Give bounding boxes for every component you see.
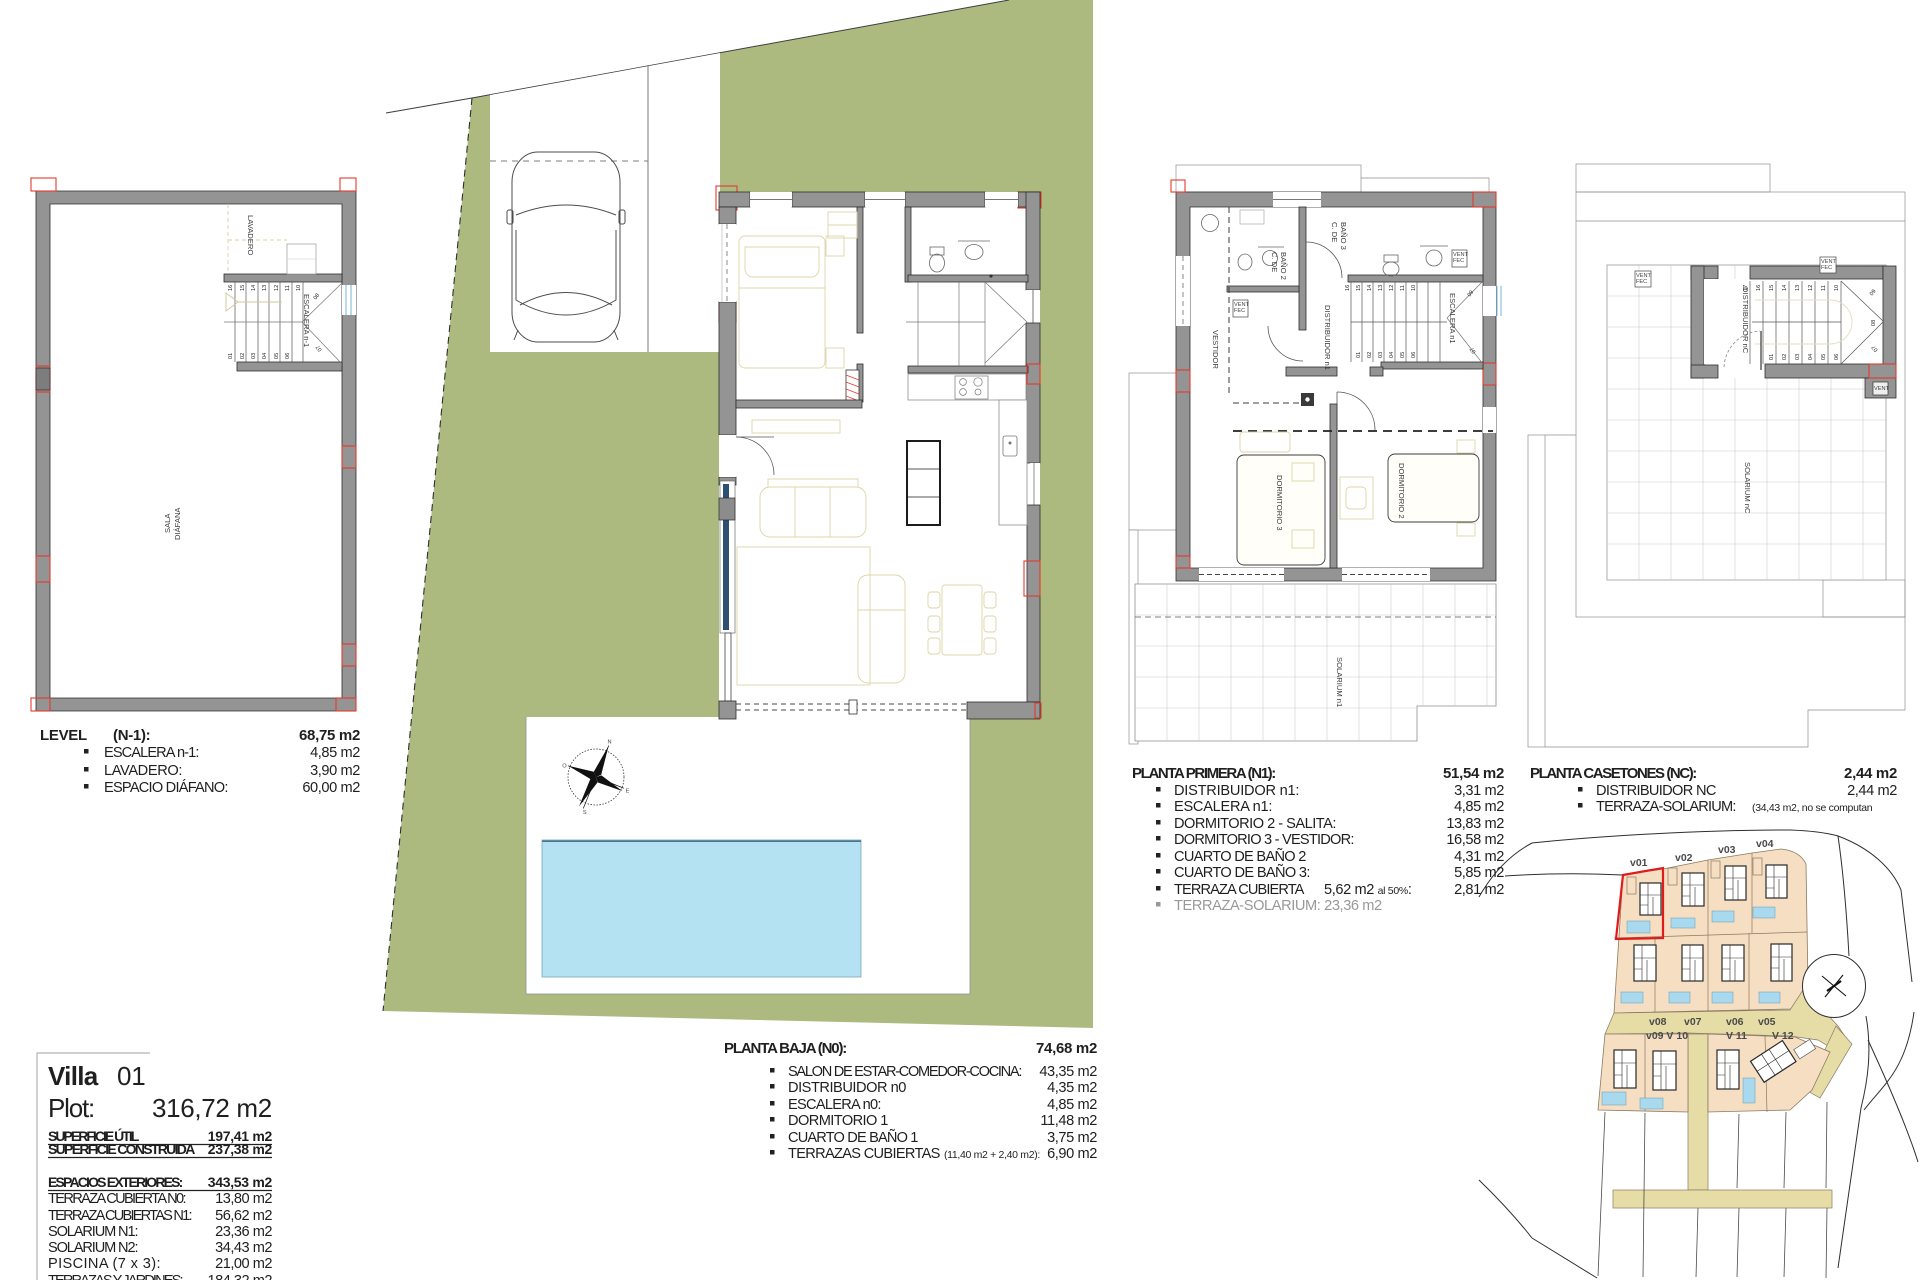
svg-text:04: 04 bbox=[1808, 354, 1814, 360]
svg-text:4,85 m2: 4,85 m2 bbox=[1454, 799, 1504, 815]
svg-text:15: 15 bbox=[240, 285, 246, 291]
svg-text:SALA: SALA bbox=[163, 513, 172, 533]
svg-text:4,35 m2: 4,35 m2 bbox=[1047, 1080, 1097, 1096]
svg-text:PLANTA PRIMERA (N1):: PLANTA PRIMERA (N1): bbox=[1132, 765, 1276, 782]
svg-text:LAVADERO: LAVADERO bbox=[246, 215, 255, 255]
svg-text:01: 01 bbox=[117, 1061, 146, 1091]
svg-text:VENT: VENT bbox=[1874, 386, 1890, 392]
svg-text:ESCALERA n-1:: ESCALERA n-1: bbox=[104, 745, 199, 761]
svg-text:3,75 m2: 3,75 m2 bbox=[1047, 1130, 1097, 1146]
svg-text:06: 06 bbox=[285, 353, 291, 359]
svg-text:LAVADERO:: LAVADERO: bbox=[104, 763, 182, 779]
svg-text:BAÑO 3: BAÑO 3 bbox=[1339, 222, 1348, 250]
svg-text:74,68 m2: 74,68 m2 bbox=[1036, 1040, 1097, 1057]
svg-text:3,90 m2: 3,90 m2 bbox=[310, 763, 360, 779]
svg-text:13: 13 bbox=[262, 285, 268, 291]
svg-text:O: O bbox=[562, 763, 567, 769]
svg-text:(34,43 m2, no se computan: (34,43 m2, no se computan bbox=[1752, 802, 1873, 814]
svg-text:v02: v02 bbox=[1675, 852, 1693, 864]
svg-text:01: 01 bbox=[1356, 352, 1362, 358]
svg-text:11: 11 bbox=[1821, 285, 1827, 291]
svg-text:06: 06 bbox=[1834, 354, 1840, 360]
svg-text:Villa: Villa bbox=[48, 1061, 99, 1091]
svg-text:BAÑO 2: BAÑO 2 bbox=[1279, 252, 1288, 280]
svg-text:v01: v01 bbox=[1630, 857, 1648, 869]
svg-text:DORMITORIO 3: DORMITORIO 3 bbox=[1275, 475, 1284, 531]
svg-text:2,44 m2: 2,44 m2 bbox=[1844, 765, 1897, 782]
svg-text:02: 02 bbox=[240, 353, 246, 359]
svg-text:V 12: V 12 bbox=[1772, 1030, 1794, 1042]
svg-text:TERRAZAS Y JARDINES:: TERRAZAS Y JARDINES: bbox=[48, 1273, 183, 1280]
svg-text:TERRAZAS CUBIERTAS: TERRAZAS CUBIERTAS bbox=[788, 1146, 941, 1162]
svg-text:12: 12 bbox=[1808, 285, 1814, 291]
svg-text:68,75 m2: 68,75 m2 bbox=[299, 727, 360, 744]
svg-text:SALON DE ESTAR-COMEDOR-COCINA:: SALON DE ESTAR-COMEDOR-COCINA: bbox=[788, 1064, 1022, 1080]
svg-text:5,62 m2 al 50%:: 5,62 m2 al 50%: bbox=[1324, 882, 1412, 898]
svg-text:DISTRIBUIDOR nC: DISTRIBUIDOR nC bbox=[1741, 287, 1750, 354]
svg-text:TERRAZA CUBIERTAS N1:: TERRAZA CUBIERTAS N1: bbox=[48, 1208, 192, 1224]
svg-text:10: 10 bbox=[296, 285, 302, 291]
svg-text:DORMITORIO 3 - VESTIDOR:: DORMITORIO 3 - VESTIDOR: bbox=[1174, 832, 1354, 848]
svg-text:TERRAZA-SOLARIUM: 23,36 m2: TERRAZA-SOLARIUM: 23,36 m2 bbox=[1174, 898, 1382, 914]
svg-text:DISTRIBUIDOR n1: DISTRIBUIDOR n1 bbox=[1323, 305, 1332, 370]
svg-text:DISTRIBUIDOR n1:: DISTRIBUIDOR n1: bbox=[1174, 783, 1299, 799]
svg-text:10: 10 bbox=[1411, 285, 1417, 291]
svg-text:16,58 m2: 16,58 m2 bbox=[1446, 832, 1504, 848]
svg-text:V 11: V 11 bbox=[1726, 1030, 1747, 1042]
svg-text:11,48 m2: 11,48 m2 bbox=[1040, 1113, 1097, 1129]
svg-text:06: 06 bbox=[1411, 352, 1417, 358]
svg-text:15: 15 bbox=[1769, 285, 1775, 291]
svg-text:184,32 m2: 184,32 m2 bbox=[208, 1273, 273, 1280]
svg-text:Plot:: Plot: bbox=[48, 1093, 95, 1123]
svg-text:CUARTO DE BAÑO 3:: CUARTO DE BAÑO 3: bbox=[1174, 864, 1310, 881]
svg-text:15: 15 bbox=[1356, 285, 1362, 291]
svg-text:TERRAZA CUBIERTA: TERRAZA CUBIERTA bbox=[1174, 882, 1305, 898]
svg-text:N: N bbox=[607, 740, 611, 746]
svg-text:56,62 m2: 56,62 m2 bbox=[215, 1208, 272, 1224]
svg-text:03: 03 bbox=[1795, 354, 1801, 360]
svg-text:14: 14 bbox=[1782, 285, 1788, 291]
svg-text:2,81 m2: 2,81 m2 bbox=[1454, 882, 1504, 898]
svg-text:60,00 m2: 60,00 m2 bbox=[302, 780, 360, 796]
svg-text:FEC: FEC bbox=[1636, 279, 1647, 285]
svg-text:DIÁFANA: DIÁFANA bbox=[173, 507, 182, 540]
svg-text:12: 12 bbox=[274, 285, 280, 291]
svg-text:01: 01 bbox=[228, 353, 234, 359]
svg-text:ESCALERA n1: ESCALERA n1 bbox=[1448, 293, 1457, 344]
svg-text:04: 04 bbox=[262, 353, 268, 359]
svg-text:03: 03 bbox=[251, 353, 257, 359]
svg-text:05: 05 bbox=[1821, 354, 1827, 360]
svg-text:02: 02 bbox=[1367, 352, 1373, 358]
svg-text:43,35 m2: 43,35 m2 bbox=[1039, 1064, 1097, 1080]
svg-text:13,80 m2: 13,80 m2 bbox=[215, 1191, 272, 1207]
svg-text:E: E bbox=[626, 789, 630, 795]
svg-text:13: 13 bbox=[1795, 285, 1801, 291]
svg-text:CUARTO DE BAÑO 2: CUARTO DE BAÑO 2 bbox=[1174, 848, 1306, 865]
svg-text:PISCINA (7 x 3):: PISCINA (7 x 3): bbox=[48, 1256, 160, 1272]
svg-text:34,43 m2: 34,43 m2 bbox=[215, 1240, 272, 1256]
svg-text:v08: v08 bbox=[1649, 1016, 1667, 1028]
svg-text:14: 14 bbox=[1367, 285, 1373, 291]
svg-text:C. DE: C. DE bbox=[1330, 222, 1339, 242]
svg-text:05: 05 bbox=[274, 353, 280, 359]
svg-text:08: 08 bbox=[1871, 320, 1877, 326]
svg-text:3,31 m2: 3,31 m2 bbox=[1454, 783, 1504, 799]
svg-text:343,53 m2: 343,53 m2 bbox=[208, 1174, 273, 1190]
svg-text:DISTRIBUIDOR n0: DISTRIBUIDOR n0 bbox=[788, 1080, 906, 1096]
svg-text:SOLARIUM N1:: SOLARIUM N1: bbox=[48, 1224, 138, 1240]
svg-text:DISTRIBUIDOR NC: DISTRIBUIDOR NC bbox=[1596, 783, 1716, 799]
svg-text:4,31 m2: 4,31 m2 bbox=[1454, 849, 1504, 865]
svg-text:23,36 m2: 23,36 m2 bbox=[215, 1224, 272, 1240]
svg-text:12: 12 bbox=[1389, 285, 1395, 291]
svg-text:(11,40 m2 + 2,40 m2):: (11,40 m2 + 2,40 m2): bbox=[944, 1149, 1040, 1161]
svg-text:2,44 m2: 2,44 m2 bbox=[1847, 783, 1897, 799]
svg-text:ESPACIOS EXTERIORES:: ESPACIOS EXTERIORES: bbox=[48, 1174, 183, 1190]
svg-text:04: 04 bbox=[1389, 352, 1395, 358]
svg-text:4,85 m2: 4,85 m2 bbox=[310, 745, 360, 761]
svg-text:v07: v07 bbox=[1684, 1016, 1702, 1028]
svg-text:02: 02 bbox=[1782, 354, 1788, 360]
svg-text:FEC: FEC bbox=[1453, 258, 1464, 264]
svg-text:TERRAZA-SOLARIUM:: TERRAZA-SOLARIUM: bbox=[1596, 799, 1736, 815]
svg-text:21,00 m2: 21,00 m2 bbox=[215, 1256, 272, 1272]
svg-text:v04: v04 bbox=[1756, 838, 1774, 850]
svg-text:v05: v05 bbox=[1758, 1016, 1776, 1028]
svg-text:LEVEL: LEVEL bbox=[40, 727, 87, 744]
svg-text:ESCALERA n1:: ESCALERA n1: bbox=[1174, 799, 1272, 815]
svg-text:01: 01 bbox=[1769, 354, 1775, 360]
svg-text:16: 16 bbox=[1756, 285, 1762, 291]
svg-text:(N-1):: (N-1): bbox=[113, 727, 150, 744]
svg-text:SOLARIUM nC: SOLARIUM nC bbox=[1743, 462, 1752, 514]
svg-text:316,72 m2: 316,72 m2 bbox=[152, 1093, 272, 1123]
svg-text:6,90 m2: 6,90 m2 bbox=[1047, 1146, 1097, 1162]
svg-text:ESCALERA n-1: ESCALERA n-1 bbox=[302, 294, 311, 347]
svg-text:13,83 m2: 13,83 m2 bbox=[1446, 816, 1504, 832]
svg-text:03: 03 bbox=[1378, 352, 1384, 358]
svg-text:C. DE: C. DE bbox=[1270, 252, 1279, 272]
svg-text:14: 14 bbox=[251, 285, 257, 291]
svg-text:4,85 m2: 4,85 m2 bbox=[1047, 1097, 1097, 1113]
svg-text:51,54 m2: 51,54 m2 bbox=[1443, 765, 1504, 782]
svg-text:ESCALERA n0:: ESCALERA n0: bbox=[788, 1097, 881, 1113]
svg-text:DORMITORIO 2: DORMITORIO 2 bbox=[1397, 463, 1406, 519]
svg-text:ESPACIO DIÁFANO:: ESPACIO DIÁFANO: bbox=[104, 779, 228, 796]
svg-text:TERRAZA CUBIERTA N0:: TERRAZA CUBIERTA N0: bbox=[48, 1191, 186, 1207]
svg-text:11: 11 bbox=[1400, 285, 1406, 291]
svg-text:DORMITORIO 2 - SALITA:: DORMITORIO 2 - SALITA: bbox=[1174, 816, 1336, 832]
svg-text:5,85 m2: 5,85 m2 bbox=[1454, 865, 1504, 881]
svg-text:v06: v06 bbox=[1726, 1016, 1744, 1028]
svg-text:CUARTO DE BAÑO 1: CUARTO DE BAÑO 1 bbox=[788, 1129, 918, 1146]
svg-text:237,38 m2: 237,38 m2 bbox=[208, 1141, 273, 1157]
svg-text:FEC: FEC bbox=[1821, 265, 1832, 271]
svg-text:VESTIDOR: VESTIDOR bbox=[1211, 330, 1220, 369]
svg-text:05: 05 bbox=[1400, 352, 1406, 358]
svg-text:S: S bbox=[583, 810, 587, 816]
svg-text:16: 16 bbox=[1345, 285, 1351, 291]
svg-text:SOLARIUM n1: SOLARIUM n1 bbox=[1335, 657, 1344, 707]
svg-text:PLANTA BAJA (N0):: PLANTA BAJA (N0): bbox=[724, 1040, 847, 1057]
svg-text:10: 10 bbox=[1834, 285, 1840, 291]
svg-text:DORMITORIO 1: DORMITORIO 1 bbox=[788, 1113, 888, 1129]
svg-text:13: 13 bbox=[1378, 285, 1384, 291]
svg-text:16: 16 bbox=[228, 285, 234, 291]
svg-text:11: 11 bbox=[285, 285, 291, 291]
svg-text:SOLARIUM N2:: SOLARIUM N2: bbox=[48, 1240, 138, 1256]
svg-text:v03: v03 bbox=[1718, 844, 1736, 856]
svg-text:SUPERFICIE CONSTRUIDA: SUPERFICIE CONSTRUIDA bbox=[48, 1141, 195, 1157]
svg-text:v09 V 10: v09 V 10 bbox=[1646, 1030, 1688, 1042]
svg-text:PLANTA CASETONES (NC):: PLANTA CASETONES (NC): bbox=[1530, 765, 1697, 782]
svg-text:FEC: FEC bbox=[1234, 308, 1245, 314]
